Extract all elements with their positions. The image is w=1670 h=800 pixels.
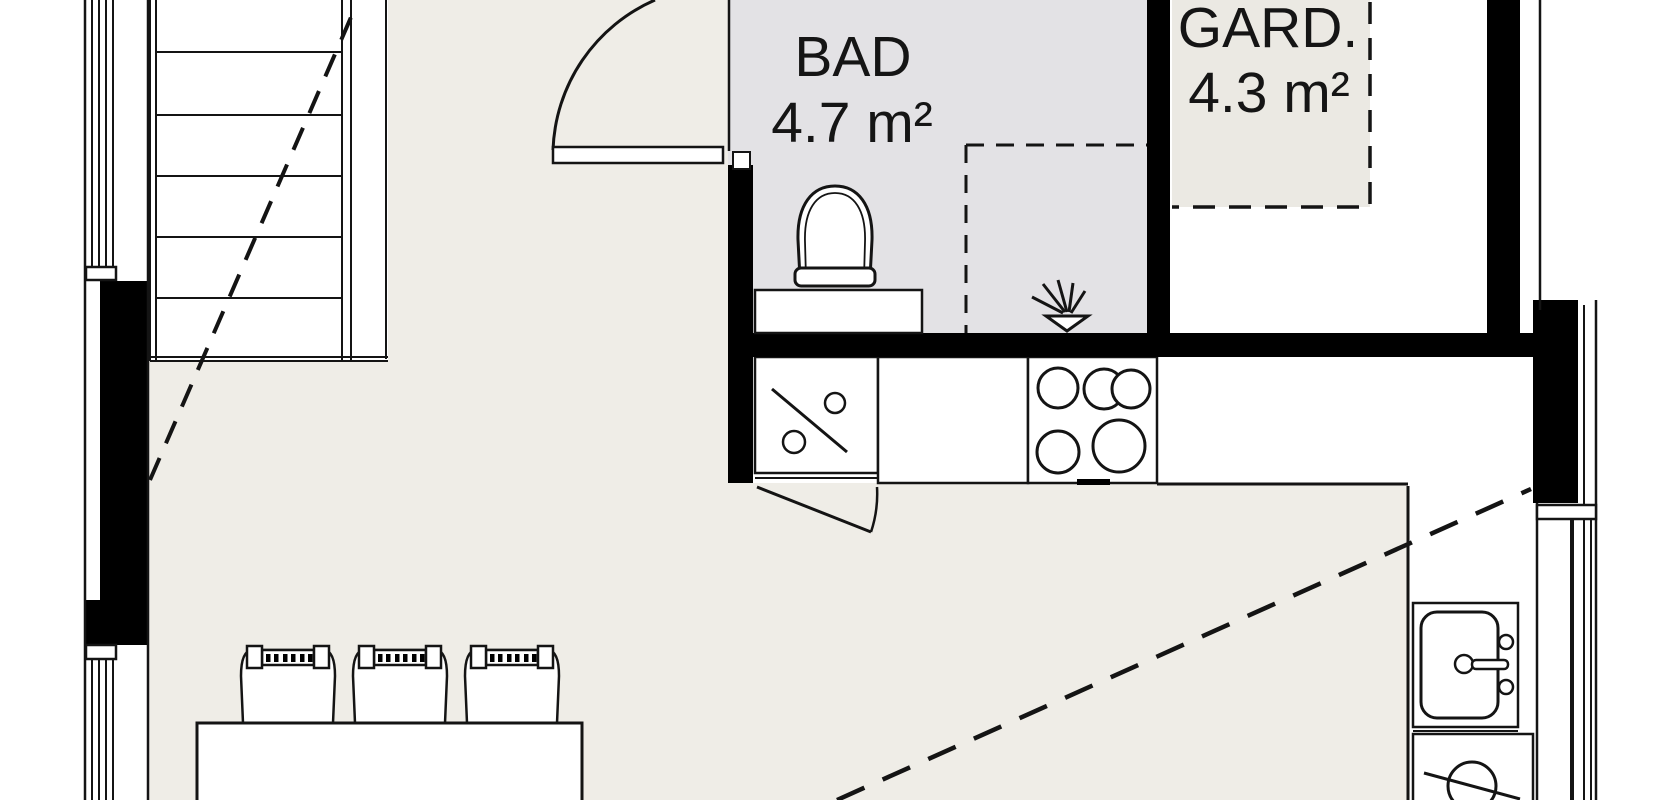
room-label-gard: GARD.	[1178, 0, 1359, 60]
toilet-icon	[795, 186, 875, 286]
chair-icon	[465, 646, 559, 723]
right-exterior-wall	[1533, 300, 1578, 503]
room-area-gard: 4.3 m²	[1188, 61, 1350, 125]
floor-plan: BAD 4.7 m² GARD. 4.3 m²	[0, 0, 1670, 800]
under-counter-appliance-icon	[1413, 734, 1533, 800]
left-wall-nub	[85, 600, 100, 645]
kitchen-sink-icon	[1413, 603, 1518, 731]
cooktop-icon	[1028, 357, 1157, 485]
dining-table-icon	[197, 646, 582, 800]
door-jamb	[733, 152, 750, 169]
chair-icon	[241, 646, 335, 723]
room-area-bad: 4.7 m²	[771, 91, 933, 155]
bathroom-left-wall	[728, 165, 753, 483]
floorplan-screenshot: { "plan_title": "Attic apartment floor p…	[0, 0, 1670, 800]
bathroom-counter-icon	[755, 290, 922, 333]
dishwasher-icon	[755, 357, 878, 478]
bathroom-floor	[728, 0, 1147, 333]
room-label-bad: BAD	[794, 25, 911, 89]
chair-icon	[353, 646, 447, 723]
door-leaf	[553, 147, 723, 163]
bathroom-bottom-wall	[728, 333, 1533, 357]
left-exterior-wall	[100, 281, 148, 645]
wardrobe-right-wall	[1487, 0, 1520, 333]
table-top	[197, 723, 582, 800]
bathroom-right-wall	[1147, 0, 1170, 333]
counter-cabinet	[878, 357, 1028, 483]
